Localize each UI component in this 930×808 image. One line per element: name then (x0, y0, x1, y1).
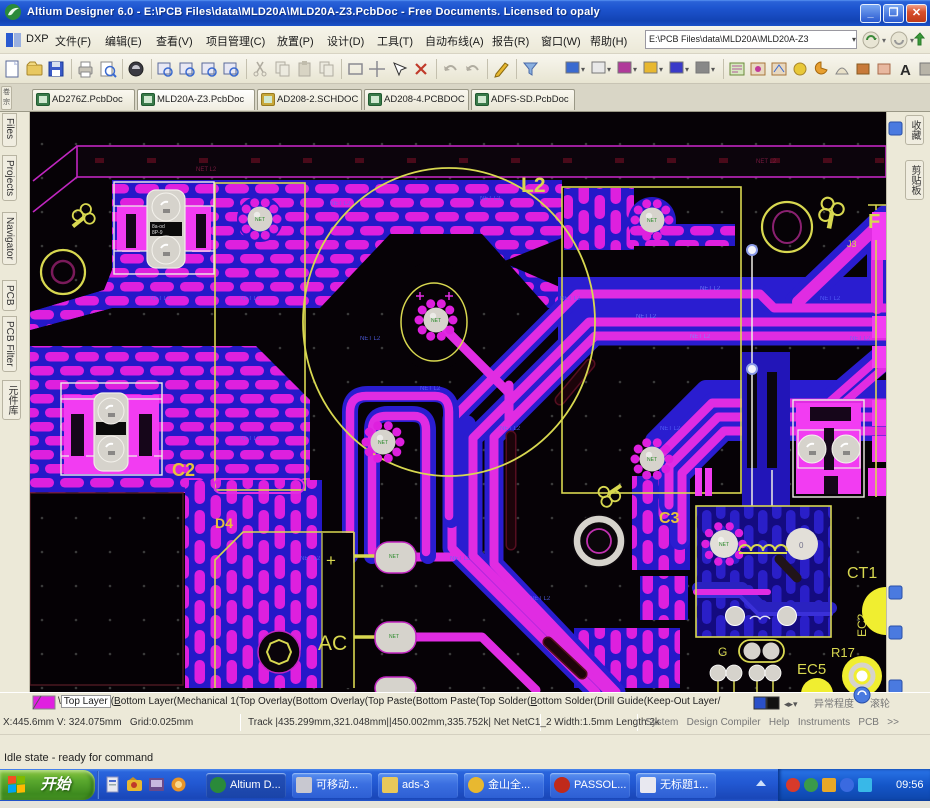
svg-text:NET: NET (378, 440, 388, 446)
svg-text:AC: AC (318, 632, 347, 655)
svg-text:+: + (326, 551, 336, 570)
svg-text:▾: ▾ (607, 65, 611, 74)
svg-text:NET L2: NET L2 (240, 436, 261, 442)
svg-text:▾: ▾ (633, 65, 637, 74)
svg-text:NET: NET (431, 318, 441, 324)
svg-text:NET L2: NET L2 (420, 386, 441, 392)
svg-text:EC5: EC5 (797, 661, 826, 678)
svg-text:C2: C2 (172, 460, 195, 480)
svg-text:NET L2: NET L2 (240, 296, 261, 302)
svg-text:0: 0 (799, 541, 804, 550)
svg-text:NET L2: NET L2 (530, 596, 551, 602)
svg-text:NET L2: NET L2 (330, 201, 351, 207)
svg-text:NET L2: NET L2 (756, 159, 777, 165)
svg-text:▾: ▾ (882, 36, 886, 45)
svg-text:▾: ▾ (659, 65, 663, 74)
svg-text:▾: ▾ (711, 65, 715, 74)
svg-text:NET: NET (719, 542, 729, 548)
svg-text:NET L2: NET L2 (660, 426, 681, 432)
svg-text:NET L2: NET L2 (150, 296, 171, 302)
svg-text:A: A (900, 62, 911, 79)
svg-text:L2: L2 (521, 174, 546, 197)
svg-text:NET: NET (389, 634, 399, 640)
svg-text:NET L2: NET L2 (850, 336, 871, 342)
svg-text:C3: C3 (659, 510, 680, 527)
svg-text:◂▸▾: ◂▸▾ (784, 699, 798, 709)
svg-text:滚轮: 滚轮 (870, 697, 890, 710)
svg-text:异常程度: 异常程度 (814, 697, 854, 710)
svg-text:▾: ▾ (685, 65, 689, 74)
svg-text:NET L2: NET L2 (480, 196, 501, 202)
svg-text:D4: D4 (215, 515, 233, 531)
svg-text:J3: J3 (847, 239, 857, 249)
svg-text:F: F (868, 211, 880, 233)
svg-text:NET: NET (647, 457, 657, 463)
svg-text:▾: ▾ (910, 36, 914, 45)
svg-text:NET L2: NET L2 (450, 556, 471, 562)
svg-text:NET: NET (255, 217, 265, 223)
svg-text:NET L2: NET L2 (636, 314, 657, 320)
svg-text:▾: ▾ (581, 65, 585, 74)
svg-text:NET L2: NET L2 (560, 296, 581, 302)
svg-text:NET L2: NET L2 (196, 167, 217, 173)
svg-text:NET L2: NET L2 (500, 426, 521, 432)
svg-text:NET L2: NET L2 (690, 334, 711, 340)
svg-text:NET L2: NET L2 (820, 296, 841, 302)
svg-text:G: G (718, 645, 727, 659)
svg-text:NET L2: NET L2 (700, 286, 721, 292)
svg-text:NET: NET (647, 218, 657, 224)
svg-text:NET L2: NET L2 (300, 556, 321, 562)
svg-text:8P-9: 8P-9 (152, 230, 163, 236)
svg-text:NET L2: NET L2 (360, 336, 381, 342)
svg-text:R17: R17 (831, 645, 855, 660)
svg-text:NET: NET (389, 554, 399, 560)
svg-text:CT1: CT1 (847, 565, 877, 582)
